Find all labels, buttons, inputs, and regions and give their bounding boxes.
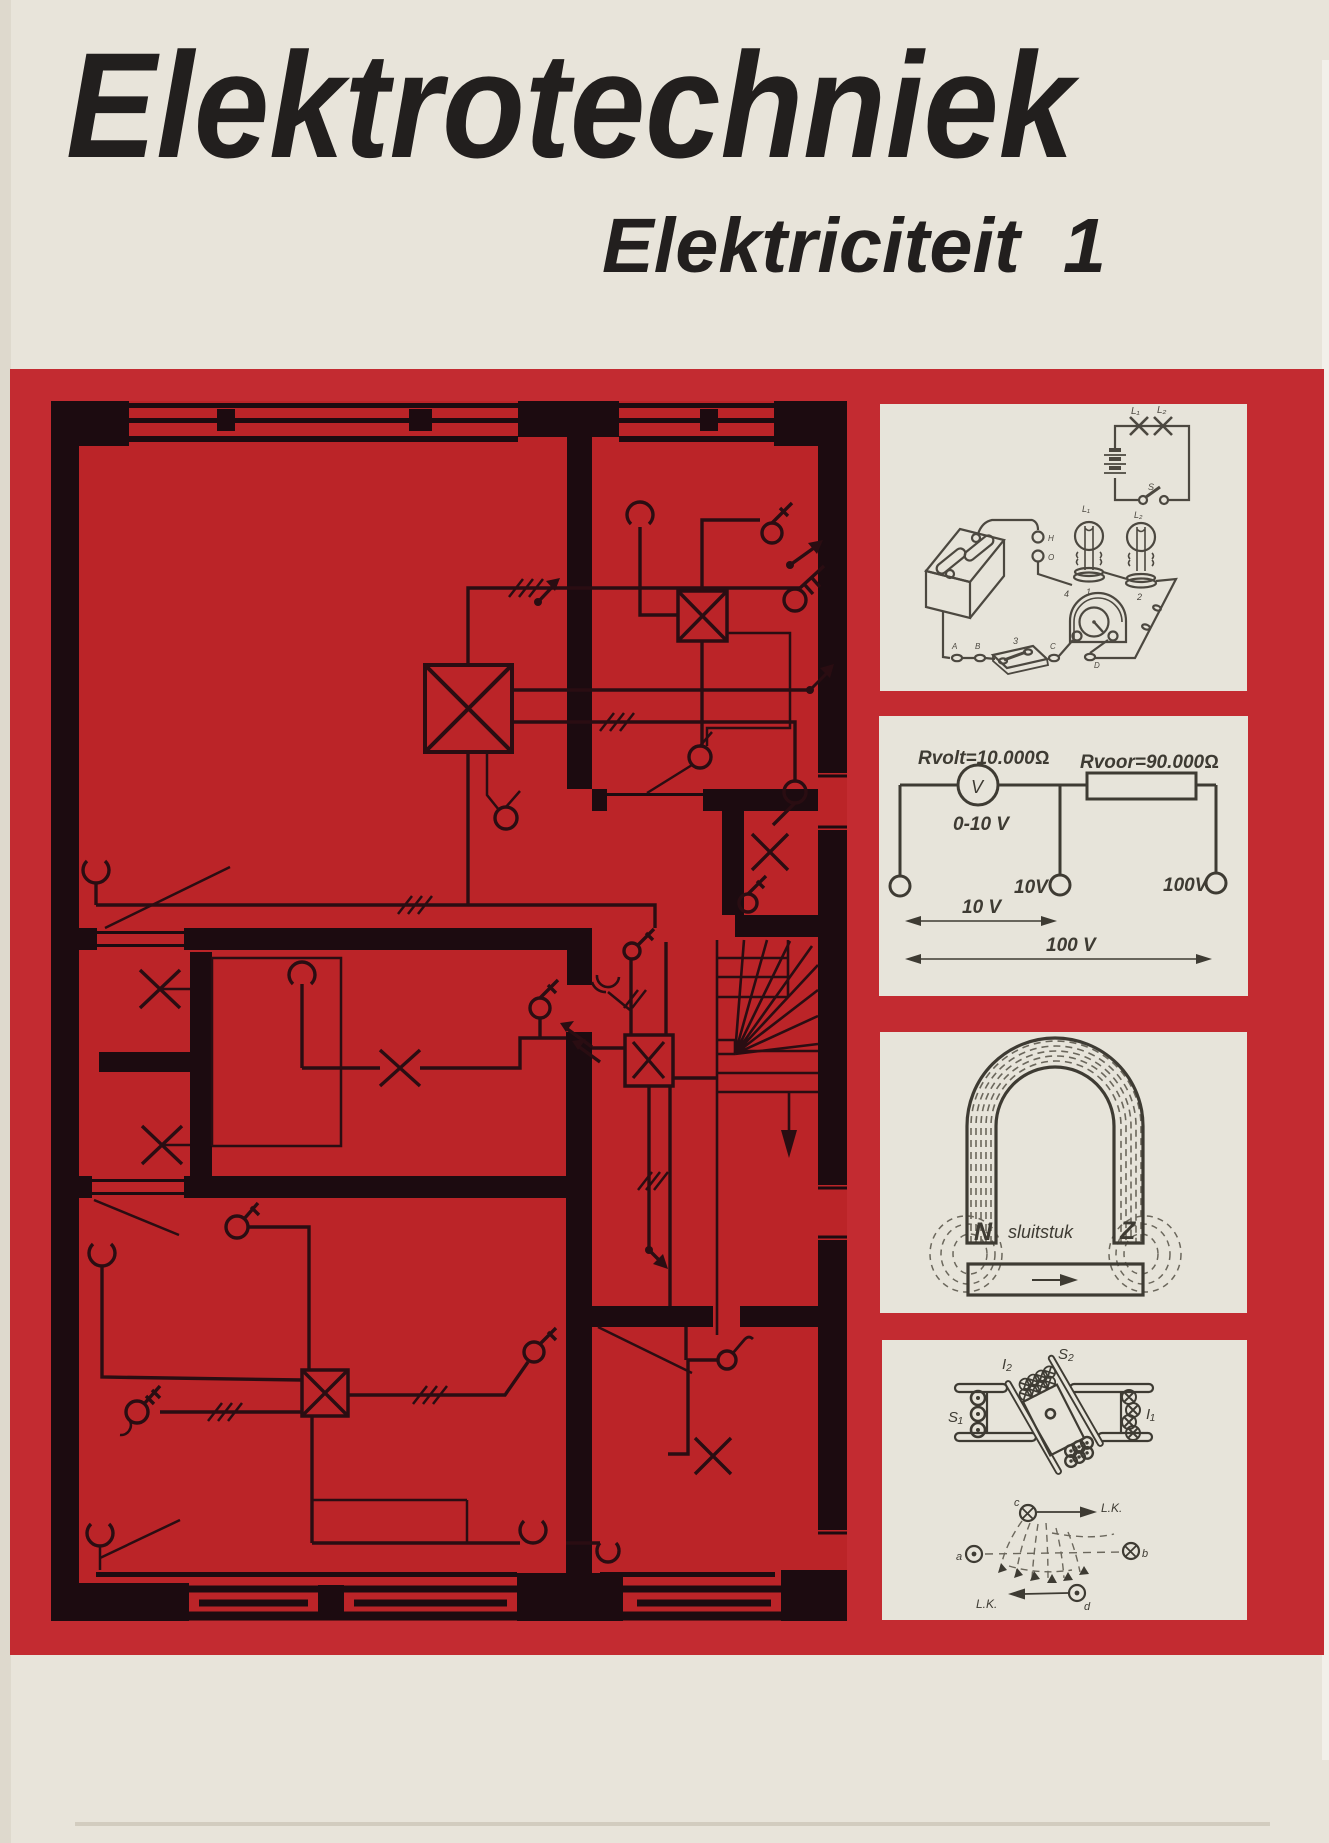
svg-text:A: A <box>951 642 957 651</box>
svg-text:I₂: I₂ <box>1002 1356 1012 1373</box>
svg-text:10 V: 10 V <box>962 897 1002 918</box>
svg-text:S₂: S₂ <box>1058 1346 1074 1363</box>
svg-text:0-10 V: 0-10 V <box>953 814 1010 835</box>
svg-text:V: V <box>971 777 985 797</box>
svg-text:I₁: I₁ <box>1146 1406 1155 1423</box>
svg-text:2: 2 <box>1136 592 1142 602</box>
svg-text:a: a <box>956 1551 962 1563</box>
svg-text:4: 4 <box>1064 589 1069 599</box>
svg-text:c: c <box>1014 1497 1020 1509</box>
svg-text:3: 3 <box>1013 636 1018 646</box>
svg-text:H: H <box>1048 534 1054 543</box>
svg-text:D: D <box>1094 661 1100 670</box>
svg-text:L₂: L₂ <box>1134 510 1143 520</box>
svg-text:100V: 100V <box>1163 875 1209 896</box>
svg-text:10V: 10V <box>1014 877 1049 898</box>
svg-text:Elektriciteit 1: Elektriciteit 1 <box>602 203 1106 289</box>
svg-text:L.K.: L.K. <box>1101 1501 1122 1515</box>
svg-text:sluitstuk: sluitstuk <box>1008 1222 1074 1242</box>
svg-text:100 V: 100 V <box>1046 935 1097 956</box>
svg-text:Elektrotechniek: Elektrotechniek <box>66 21 1080 189</box>
svg-text:L₁: L₁ <box>1082 504 1090 514</box>
svg-text:O: O <box>1048 553 1054 562</box>
svg-text:Rvoor=90.000Ω: Rvoor=90.000Ω <box>1080 752 1219 773</box>
svg-text:L₂: L₂ <box>1157 405 1167 416</box>
svg-text:N: N <box>974 1218 993 1246</box>
svg-text:d: d <box>1084 1601 1091 1613</box>
svg-text:S: S <box>1148 482 1154 492</box>
svg-text:S₁: S₁ <box>948 1409 963 1426</box>
svg-text:C: C <box>1050 642 1056 651</box>
svg-text:L.K.: L.K. <box>976 1597 997 1611</box>
svg-text:L₁: L₁ <box>1131 406 1140 417</box>
svg-text:Z: Z <box>1119 1217 1137 1245</box>
svg-text:b: b <box>1142 1548 1148 1560</box>
svg-text:B: B <box>975 642 981 651</box>
